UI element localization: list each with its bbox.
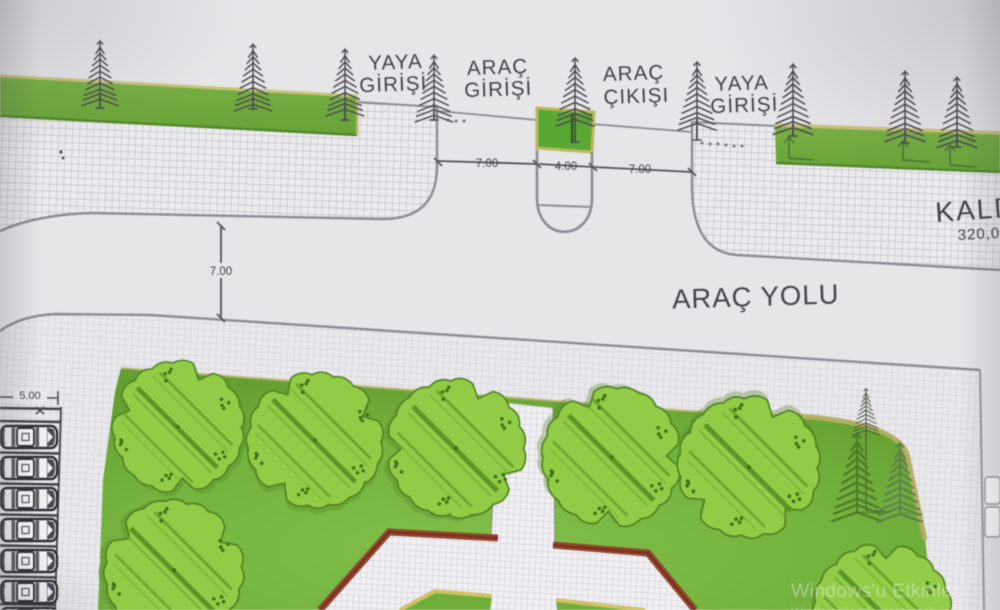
svg-text:GİRİŞİ: GİRİŞİ — [464, 77, 533, 102]
svg-text:320,00: 320,00 — [957, 224, 1000, 244]
svg-text:YAYA: YAYA — [368, 50, 423, 75]
svg-text:ÇIKIŞI: ÇIKIŞI — [603, 84, 670, 109]
svg-text:ARAÇ: ARAÇ — [603, 61, 665, 86]
svg-text:Windows'u Etkinleştir: Windows'u Etkinleştir — [791, 580, 979, 602]
svg-text:GİRİŞİ: GİRİŞİ — [710, 93, 779, 118]
svg-text:5.00: 5.00 — [19, 390, 40, 402]
svg-text:7.00: 7.00 — [629, 164, 651, 176]
svg-text:YAYA: YAYA — [714, 71, 769, 96]
svg-text:4.00: 4.00 — [555, 161, 577, 173]
svg-text:7.00: 7.00 — [476, 158, 498, 170]
svg-text:7.00: 7.00 — [210, 266, 232, 278]
svg-text:ARAÇ YOLU: ARAÇ YOLU — [672, 278, 840, 314]
svg-text:GİRİŞİ: GİRİŞİ — [359, 72, 428, 97]
svg-text:Windows'u etkinleştirmek için: Windows'u etkinleştirmek için Ayarlar'a … — [791, 604, 1000, 610]
